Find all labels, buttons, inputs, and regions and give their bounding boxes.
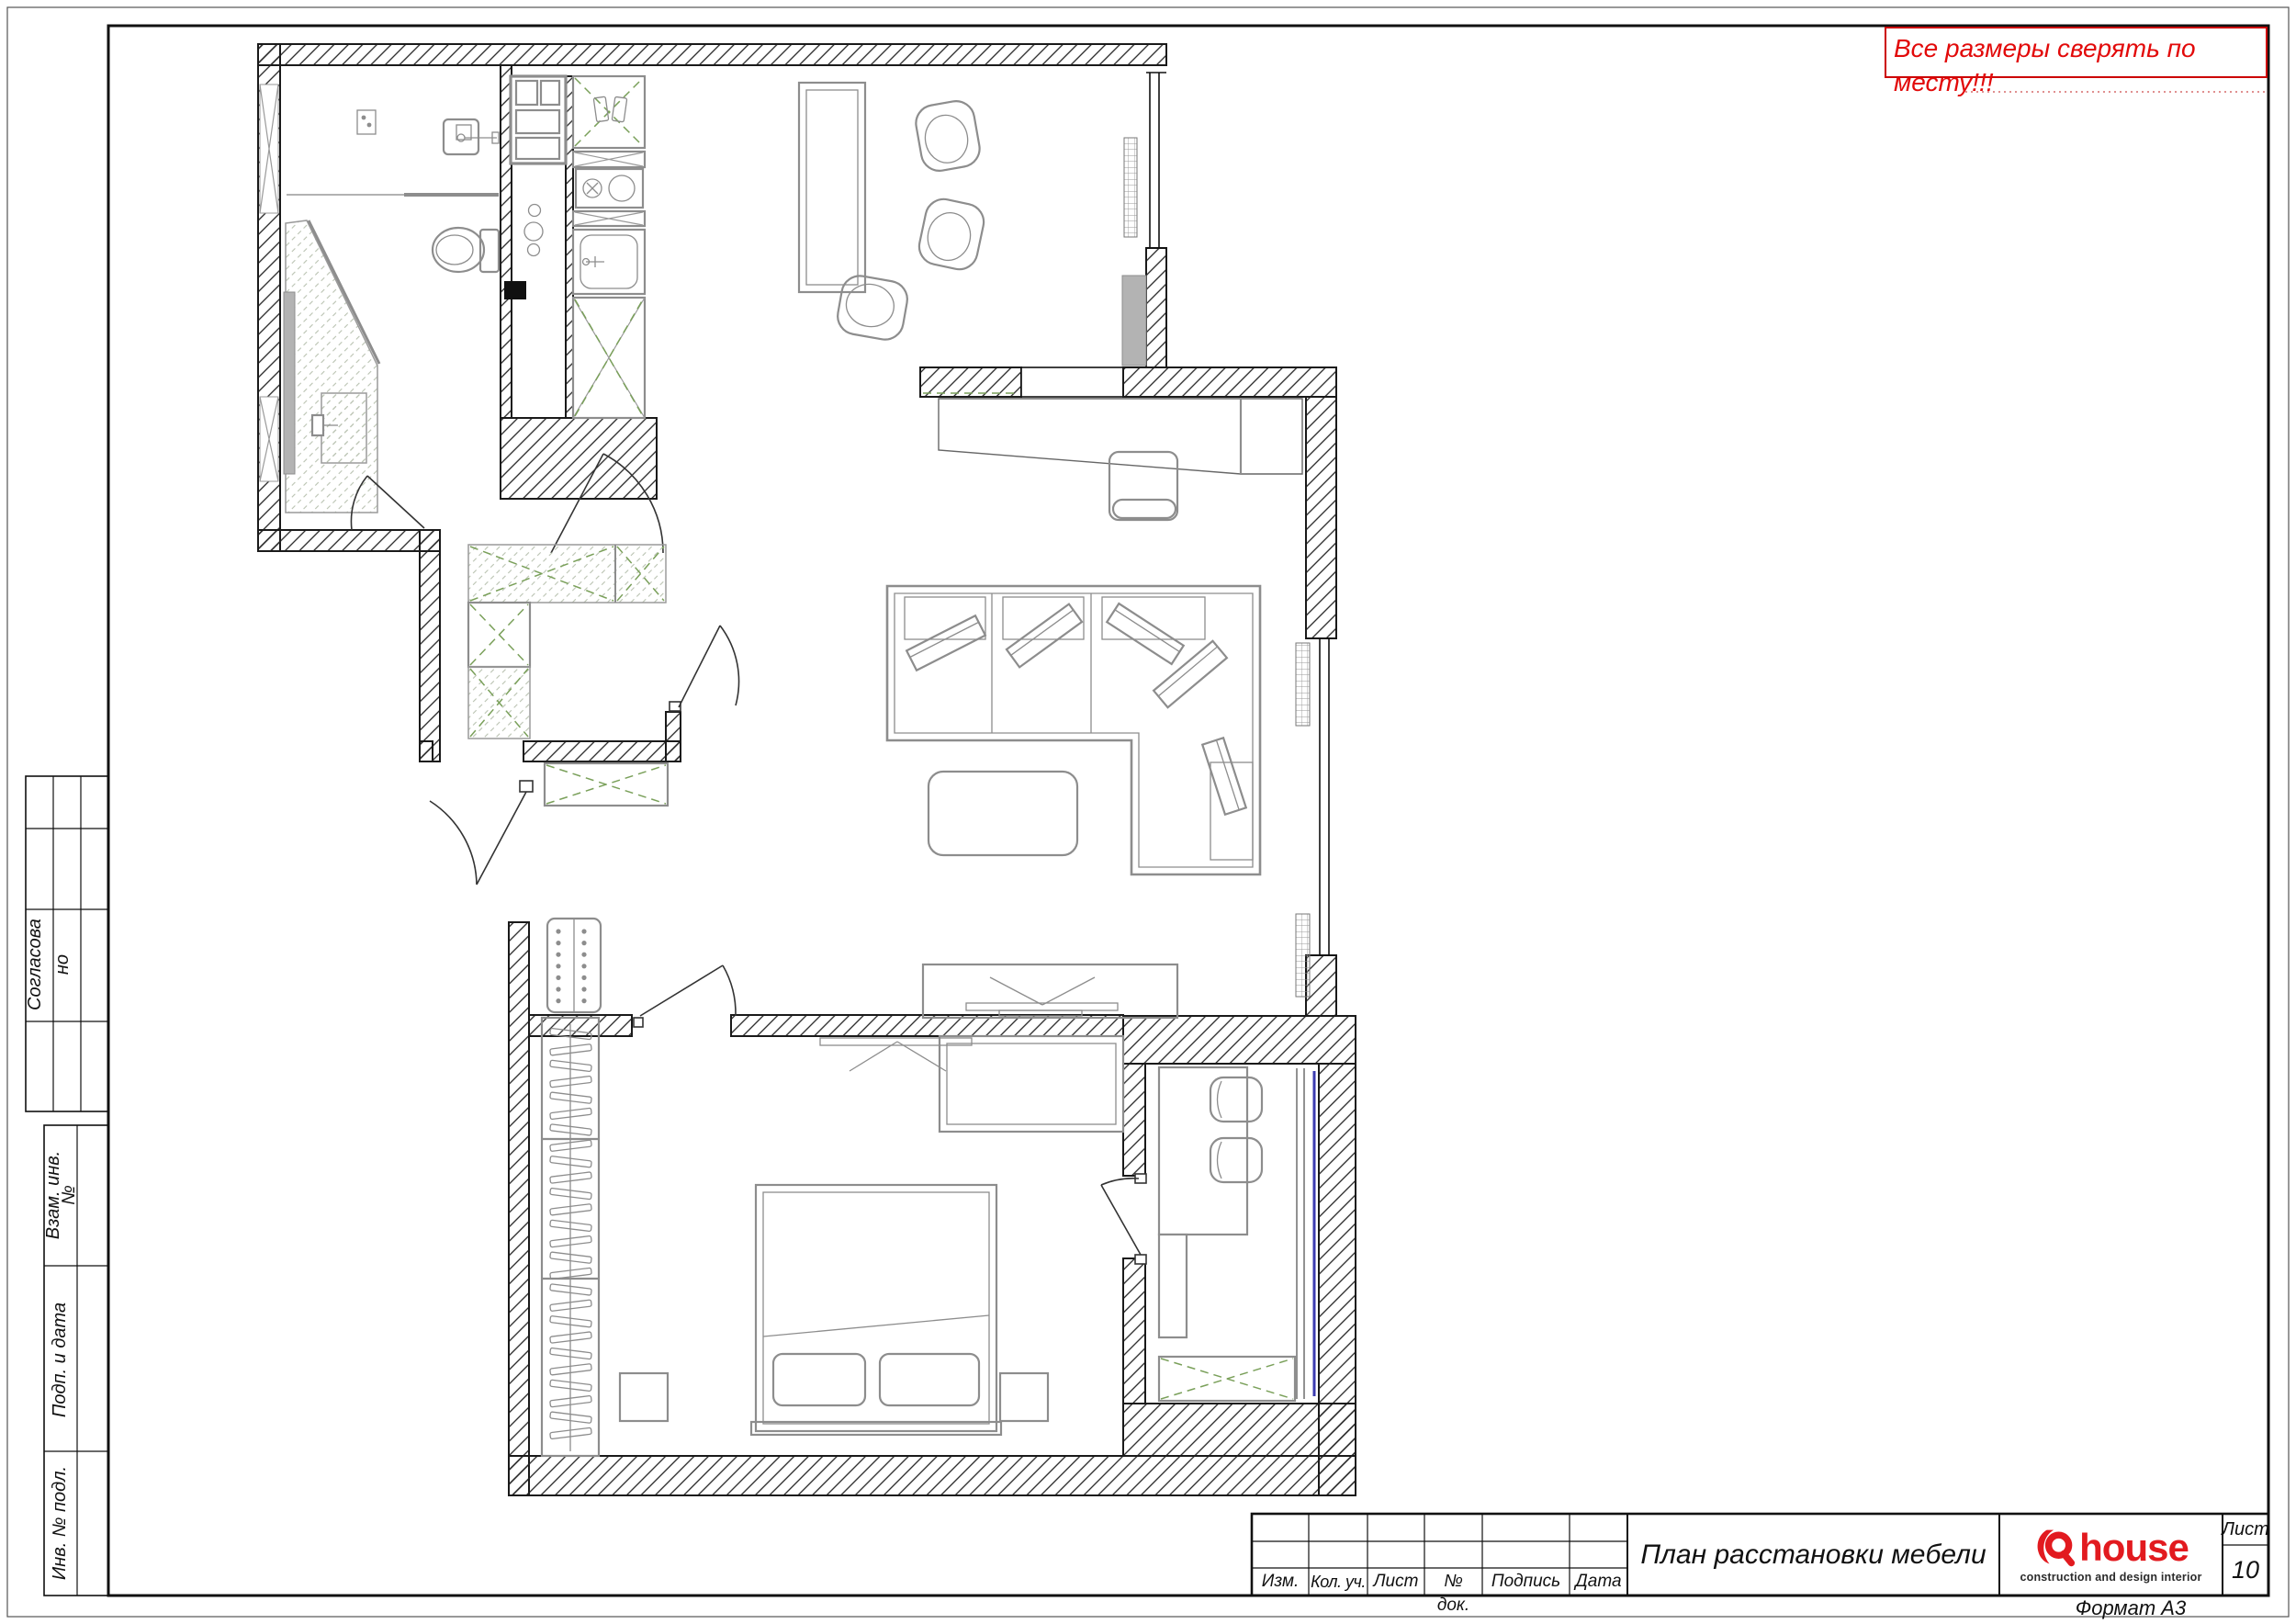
wall-entry-stub: [666, 712, 681, 761]
wall-balcony-divider-bottom: [1123, 1258, 1145, 1404]
wardrobe: [542, 1018, 599, 1456]
dot: [556, 929, 560, 933]
col-kol-uch: Кол. уч.: [1309, 1568, 1367, 1596]
dining-chair: [916, 196, 987, 273]
col-data: Дата: [1570, 1568, 1627, 1596]
hob: [576, 169, 643, 208]
radiator: [1124, 138, 1137, 237]
entry-door: [430, 781, 533, 885]
dot: [556, 964, 560, 968]
nightstand: [620, 1373, 668, 1421]
pillow: [880, 1354, 979, 1405]
balcony-desk: [1159, 1067, 1247, 1235]
site-verification-note: Все размеры сверять по месту!!!: [1894, 31, 2206, 99]
shoe-cabinet: [547, 919, 601, 1012]
company-logo: house construction and design interior: [1999, 1514, 2223, 1596]
balcony-glazing: [1297, 1068, 1314, 1399]
dining-table: [799, 83, 865, 292]
dot: [581, 929, 586, 933]
col-list: Лист: [1367, 1568, 1424, 1596]
col-podpis: Подпись: [1482, 1568, 1570, 1596]
bedroom-door: [634, 965, 736, 1027]
vanity-cabinet: [321, 393, 366, 463]
col-n-dok: №: [1424, 1568, 1482, 1596]
duct-marker: [504, 281, 526, 299]
study-area: [923, 393, 1302, 520]
dining-area: [799, 83, 987, 343]
approved-label-line2: но: [55, 908, 71, 1021]
wall-bedroom-left: [509, 922, 529, 1495]
drawing-title: План расстановки мебели: [1627, 1514, 1999, 1596]
logo-name: house: [2079, 1526, 2189, 1570]
dot: [556, 987, 560, 991]
dining-chair: [913, 98, 983, 174]
dot: [556, 976, 560, 980]
wall-top: [258, 44, 1166, 65]
bed: [751, 1185, 1001, 1435]
bedroom: [542, 919, 1123, 1456]
wall-hall-left: [420, 530, 440, 761]
wall-kitchen-bottom: [501, 418, 657, 499]
col-izm: Изм.: [1252, 1568, 1309, 1596]
wall-balcony-bottom: [1123, 1404, 1356, 1456]
balcony-cabinet: [1159, 1357, 1295, 1401]
wall-living-right-upper: [1306, 397, 1336, 638]
wall-bath-bottom: [258, 530, 440, 551]
floor-plan: [0, 0, 2296, 1624]
washing-machine: [444, 119, 499, 154]
wall-dining-right: [1146, 248, 1166, 367]
dot: [581, 976, 586, 980]
closet: [468, 545, 666, 603]
vent-shaft: [1122, 276, 1146, 366]
vzam-line2: №: [62, 1126, 77, 1264]
dot: [581, 964, 586, 968]
shower-glass-panel: [284, 292, 295, 474]
balcony-door: [1101, 1174, 1146, 1264]
dining-chair: [835, 273, 910, 343]
wall-balcony-top: [1123, 1016, 1356, 1064]
approved-label-line1: Согласова: [28, 908, 43, 1021]
drawing-sheet: Все размеры сверять по месту!!! Согласов…: [0, 0, 2296, 1624]
living-hall-door: [670, 626, 739, 711]
tall-cabinet: [511, 76, 566, 164]
kitchen-sink: [573, 230, 645, 294]
format-note: Формат А3: [2039, 1598, 2223, 1618]
dot: [581, 987, 586, 991]
living-room: [887, 586, 1260, 1018]
control-knobs: [524, 205, 543, 256]
dining-window: [1124, 73, 1166, 248]
balcony-desk-return: [1159, 1235, 1187, 1337]
col-n-dok-overflow: док.: [1424, 1596, 1482, 1616]
kitchen-counter: [573, 76, 645, 418]
radiator: [1296, 914, 1310, 997]
wall-bottom: [509, 1456, 1356, 1495]
sink: [312, 415, 323, 435]
dot: [556, 998, 560, 1003]
wall-balcony-divider-top: [1123, 1064, 1145, 1176]
wall-opening: [1021, 367, 1123, 397]
iq-logo-mark: [2033, 1527, 2076, 1569]
wall-hall-bottom-stub: [420, 741, 433, 761]
tv-unit: [923, 964, 1177, 1018]
sofa: [887, 586, 1260, 874]
desk: [939, 399, 1302, 474]
hallway: [430, 545, 739, 885]
sheet-number: 10: [2223, 1545, 2268, 1596]
dot: [581, 941, 586, 945]
blanket-line: [763, 1315, 989, 1336]
dot: [581, 998, 586, 1003]
dot: [556, 953, 560, 957]
toilet: [433, 228, 499, 272]
sheet-label: Лист: [2223, 1514, 2268, 1545]
inv-podl-label: Инв. № подл.: [52, 1453, 68, 1593]
pillow: [773, 1354, 865, 1405]
wall-hall-bottom: [523, 741, 681, 761]
coffee-table: [929, 772, 1077, 855]
dot: [556, 941, 560, 945]
nightstand: [1000, 1373, 1048, 1421]
vzam-inv-label: Взам. инв. №: [46, 1126, 77, 1264]
logo-tagline: construction and design interior: [2020, 1571, 2201, 1584]
radiator: [1296, 643, 1310, 726]
wall-dining-living: [1123, 367, 1336, 397]
dot: [581, 953, 586, 957]
wall-living-right-lower: [1306, 955, 1336, 1016]
wall-fixture-icon: [357, 110, 376, 134]
podp-data-label: Подп. и дата: [52, 1270, 68, 1449]
built-in-closet: [940, 1036, 1123, 1132]
bathroom: [284, 110, 499, 530]
living-window: [1296, 638, 1336, 997]
wall-study-beam: [920, 367, 1021, 397]
